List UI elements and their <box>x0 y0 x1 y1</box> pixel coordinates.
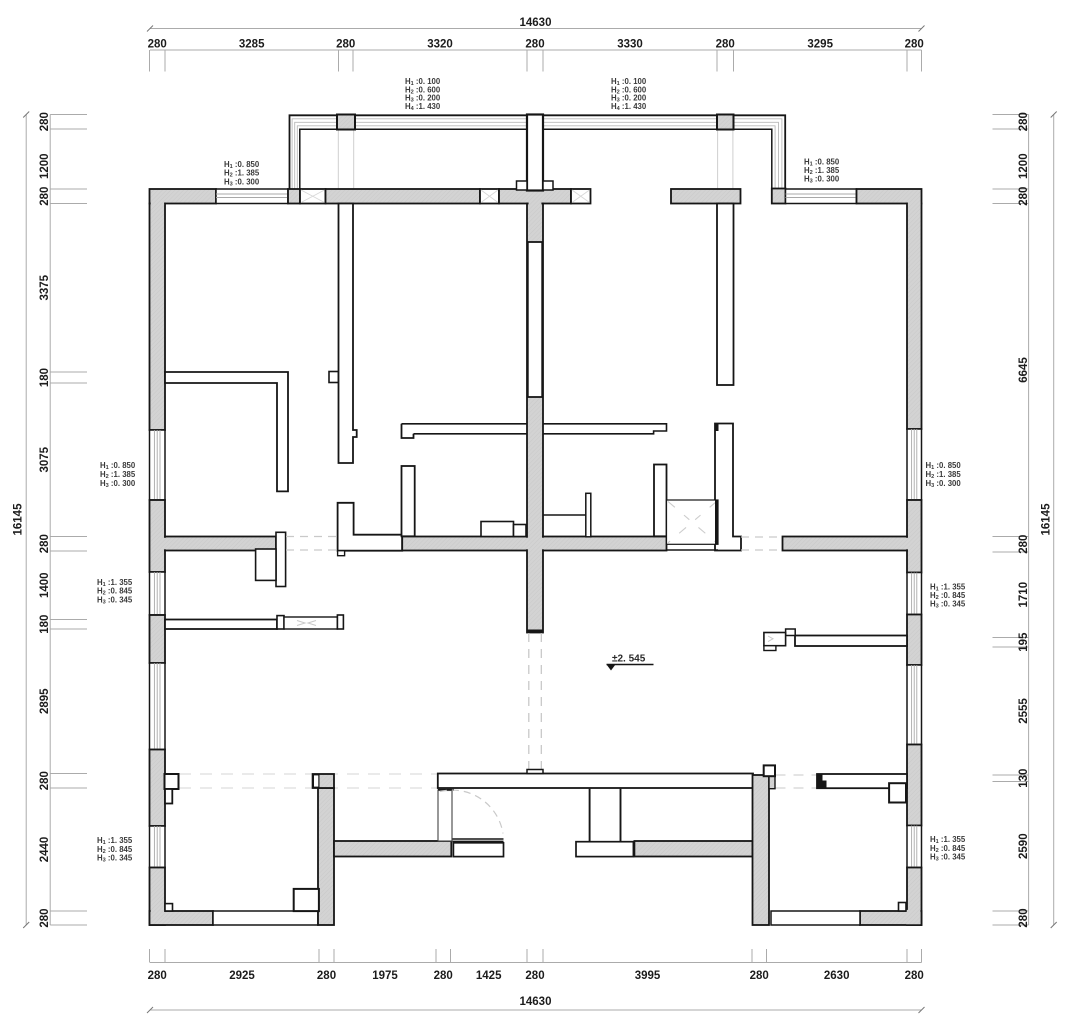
svg-text:±2. 545: ±2. 545 <box>612 654 646 665</box>
svg-text:280: 280 <box>1018 187 1030 206</box>
svg-text:H3 :0. 300: H3 :0. 300 <box>926 479 962 489</box>
svg-text:H3 :0. 345: H3 :0. 345 <box>930 600 966 610</box>
svg-text:180: 180 <box>39 615 51 634</box>
svg-text:H3 :0. 345: H3 :0. 345 <box>97 854 133 864</box>
svg-text:3320: 3320 <box>427 39 453 51</box>
svg-text:16145: 16145 <box>1041 503 1053 536</box>
svg-text:14630: 14630 <box>520 996 552 1008</box>
svg-text:3295: 3295 <box>807 39 833 51</box>
svg-text:6645: 6645 <box>1018 357 1030 383</box>
svg-text:280: 280 <box>905 39 924 51</box>
svg-text:3995: 3995 <box>635 970 661 982</box>
svg-text:130: 130 <box>1018 769 1030 788</box>
svg-text:280: 280 <box>1018 535 1030 554</box>
svg-text:280: 280 <box>525 970 544 982</box>
svg-text:180: 180 <box>39 368 51 387</box>
svg-text:3285: 3285 <box>239 39 265 51</box>
svg-text:3375: 3375 <box>39 274 51 300</box>
svg-text:280: 280 <box>336 39 355 51</box>
svg-text:3075: 3075 <box>39 446 51 472</box>
svg-text:280: 280 <box>148 970 167 982</box>
svg-text:195: 195 <box>1018 632 1030 652</box>
svg-text:280: 280 <box>716 39 735 51</box>
svg-text:H3 :0. 345: H3 :0. 345 <box>930 853 966 863</box>
svg-text:2590: 2590 <box>1018 833 1030 859</box>
svg-text:1200: 1200 <box>1018 153 1030 179</box>
svg-text:280: 280 <box>525 39 544 51</box>
svg-text:280: 280 <box>750 970 769 982</box>
svg-text:H3 :0. 300: H3 :0. 300 <box>100 479 136 489</box>
svg-text:16145: 16145 <box>13 503 25 536</box>
svg-text:1200: 1200 <box>39 153 51 179</box>
svg-text:3330: 3330 <box>617 39 643 51</box>
svg-text:1710: 1710 <box>1018 582 1030 608</box>
svg-text:H3 :0. 345: H3 :0. 345 <box>97 595 133 605</box>
svg-text:1425: 1425 <box>476 970 502 982</box>
svg-text:2925: 2925 <box>229 970 255 982</box>
svg-text:280: 280 <box>905 970 924 982</box>
svg-text:280: 280 <box>148 39 167 51</box>
svg-text:280: 280 <box>1018 112 1030 131</box>
svg-text:280: 280 <box>434 970 453 982</box>
svg-text:2895: 2895 <box>39 688 51 714</box>
svg-text:1975: 1975 <box>372 970 398 982</box>
svg-text:2440: 2440 <box>39 837 51 863</box>
svg-text:2630: 2630 <box>824 970 850 982</box>
svg-text:280: 280 <box>39 187 51 206</box>
svg-text:280: 280 <box>317 970 336 982</box>
svg-text:H3 :0. 300: H3 :0. 300 <box>804 174 840 184</box>
svg-text:280: 280 <box>39 534 51 553</box>
svg-text:280: 280 <box>39 771 51 790</box>
svg-text:2555: 2555 <box>1018 698 1030 724</box>
svg-text:14630: 14630 <box>520 17 552 29</box>
svg-text:280: 280 <box>39 908 51 927</box>
svg-text:H4 :1. 430: H4 :1. 430 <box>405 102 441 112</box>
svg-text:H4 :1. 430: H4 :1. 430 <box>611 102 647 112</box>
svg-text:H3 :0. 300: H3 :0. 300 <box>224 177 260 187</box>
svg-text:1400: 1400 <box>39 572 51 598</box>
svg-text:280: 280 <box>1018 908 1030 927</box>
svg-text:280: 280 <box>39 112 51 131</box>
